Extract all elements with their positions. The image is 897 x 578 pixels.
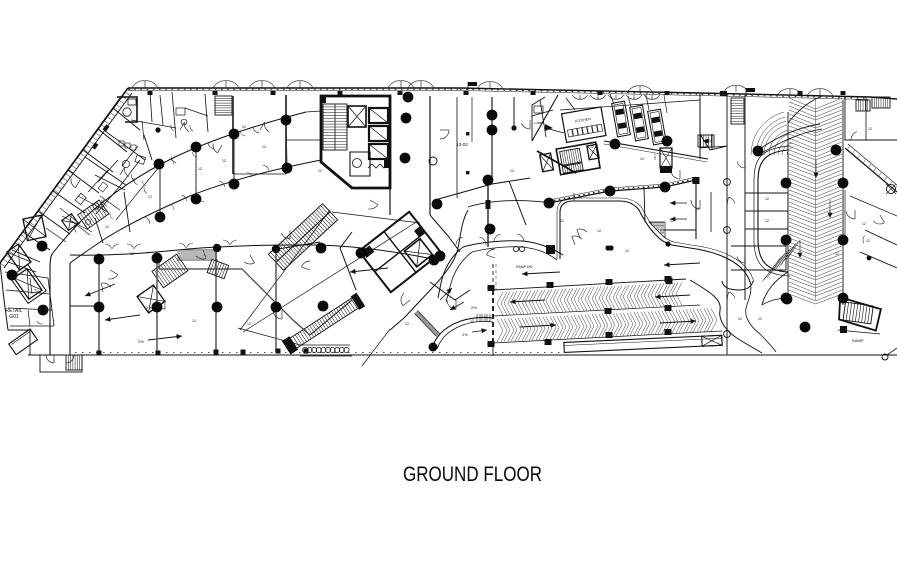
svg-text:12: 12 <box>868 127 872 131</box>
svg-text:12: 12 <box>695 207 699 211</box>
svg-text:12: 12 <box>866 239 870 243</box>
svg-text:12: 12 <box>242 125 246 129</box>
svg-text:12: 12 <box>470 319 474 323</box>
svg-text:12: 12 <box>640 157 644 161</box>
svg-text:12: 12 <box>625 249 629 253</box>
svg-text:12: 12 <box>590 145 594 149</box>
svg-text:12: 12 <box>148 195 152 199</box>
svg-text:G01: G01 <box>9 314 19 320</box>
svg-text:LOBBY: LOBBY <box>534 121 544 125</box>
svg-text:12: 12 <box>222 159 226 163</box>
svg-text:12: 12 <box>510 169 514 173</box>
svg-text:12: 12 <box>130 252 134 256</box>
svg-text:2%: 2% <box>462 332 468 337</box>
svg-text:12: 12 <box>560 219 564 223</box>
svg-text:2%: 2% <box>138 339 144 344</box>
svg-text:12: 12 <box>105 225 109 229</box>
svg-text:12: 12 <box>192 319 196 323</box>
svg-text:12: 12 <box>862 222 866 226</box>
svg-text:12: 12 <box>318 169 322 173</box>
svg-text:RAMP: RAMP <box>852 338 864 343</box>
svg-text:12: 12 <box>835 252 839 256</box>
svg-text:12: 12 <box>198 167 202 171</box>
svg-text:LIFT: LIFT <box>653 154 657 160</box>
svg-text:12: 12 <box>262 145 266 149</box>
svg-text:12: 12 <box>670 219 674 223</box>
svg-text:GROUND FLOOR: GROUND FLOOR <box>403 462 542 486</box>
svg-text:12: 12 <box>247 322 251 326</box>
svg-text:12: 12 <box>765 197 769 201</box>
svg-text:2%: 2% <box>146 305 152 310</box>
svg-text:12: 12 <box>758 317 762 321</box>
svg-text:2%: 2% <box>471 305 477 310</box>
svg-text:12: 12 <box>765 219 769 223</box>
svg-text:12: 12 <box>597 229 601 233</box>
svg-text:13-02: 13-02 <box>456 142 468 147</box>
svg-text:RAMP DN: RAMP DN <box>516 265 533 269</box>
svg-text:12: 12 <box>405 322 409 326</box>
svg-text:12: 12 <box>738 317 742 321</box>
